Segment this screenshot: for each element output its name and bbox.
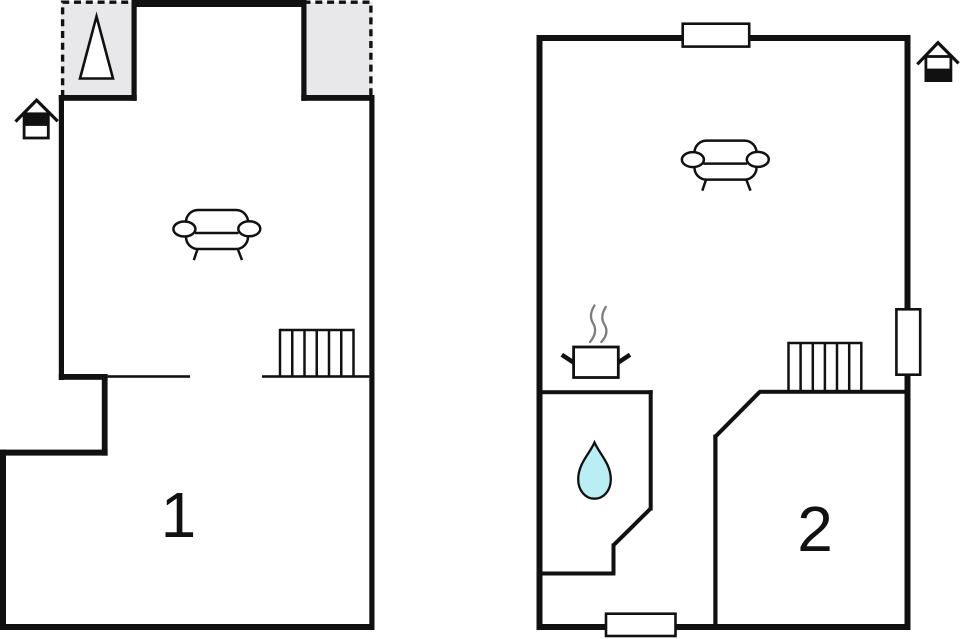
svg-text:1: 1 <box>161 479 197 551</box>
svg-text:2: 2 <box>797 493 833 565</box>
